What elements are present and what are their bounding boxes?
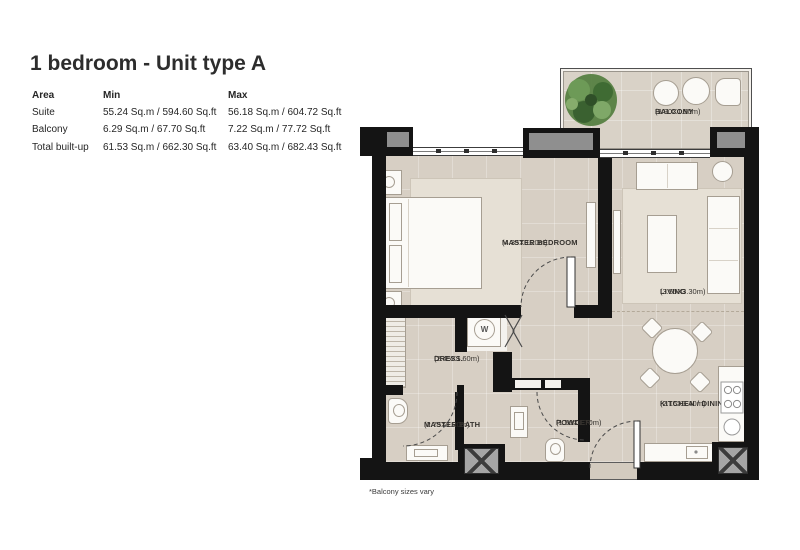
pillar-inset xyxy=(717,132,745,148)
sofa-cushion-line xyxy=(709,228,738,229)
living-dims: (3.55X3.30m) xyxy=(660,287,705,297)
wall-closet-left xyxy=(455,305,467,352)
dining-table xyxy=(652,328,698,374)
sofa-cushion-line xyxy=(709,260,738,261)
window-pane xyxy=(600,153,710,154)
spec-total-label: Total built-up xyxy=(32,142,103,159)
shaft-hatch-bath xyxy=(464,448,499,474)
pillar-inset xyxy=(529,133,593,150)
wall-right xyxy=(744,156,759,480)
shaft-hatch-kitchen xyxy=(718,447,748,474)
spec-total-min: 61.53 Sq.m / 662.30 Sq.ft xyxy=(103,142,228,159)
wall-bedroom-living xyxy=(598,156,612,318)
entry-threshold xyxy=(590,462,637,480)
floor-plan: W BALCONY (3.90X1.50m) MASTER BEDROOM (4… xyxy=(360,60,764,500)
wall-bath-top-left xyxy=(380,385,403,395)
sofa-cushion-line xyxy=(667,164,668,188)
wall-bedroom-door-stub xyxy=(574,305,598,318)
pillar-inset xyxy=(387,132,409,147)
side-table xyxy=(712,161,733,182)
kitchen-sink xyxy=(686,446,708,459)
footnote: *Balcony sizes vary xyxy=(369,487,434,496)
balcony-dims: (3.90X1.50m) xyxy=(655,107,700,117)
master-bedroom-dims: (4.35X3.20m) xyxy=(502,238,547,248)
wall-bedroom-bottom xyxy=(384,305,521,318)
powder-basin xyxy=(514,412,524,430)
coffee-table xyxy=(647,215,677,273)
pillow xyxy=(389,245,402,283)
bath-toilet-bowl xyxy=(393,404,405,417)
window-pane xyxy=(413,151,523,152)
powder-shelf xyxy=(515,380,541,388)
tv-console xyxy=(613,210,621,274)
spec-header-area: Area xyxy=(32,90,103,107)
powder-dims: (1.50X1.70m) xyxy=(556,418,601,428)
balcony-table xyxy=(682,77,710,105)
page-title: 1 bedroom - Unit type A xyxy=(30,52,266,76)
balcony-door-window xyxy=(600,149,710,158)
powder-shelf xyxy=(545,380,561,388)
spec-header-min: Min xyxy=(103,90,228,107)
master-bath-dims: (2.75X1.20m) xyxy=(424,420,469,430)
balcony-chair xyxy=(715,78,741,106)
kitchen-dining-dims: (2.15X3.40m) xyxy=(660,399,705,409)
bedroom-dresser xyxy=(586,202,596,268)
floor-transition-line xyxy=(612,311,744,312)
spec-suite-label: Suite xyxy=(32,107,103,124)
spec-balcony-label: Balcony xyxy=(32,124,103,141)
wall-powder-right xyxy=(578,390,590,442)
wall-bottom xyxy=(372,462,759,480)
balcony-chair xyxy=(653,80,679,106)
page: 1 bedroom - Unit type A Area Min Max Sui… xyxy=(0,0,800,550)
bath-basin xyxy=(414,449,438,457)
washing-machine-drum: W xyxy=(474,319,495,340)
bed-fold-line xyxy=(408,199,409,287)
wall-corner-bottom-left xyxy=(360,458,374,480)
pillow xyxy=(389,203,402,241)
wall-left xyxy=(372,156,386,480)
dress-dims: (2.45X1.60m) xyxy=(434,354,479,364)
powder-toilet-bowl xyxy=(550,443,561,455)
spec-suite-min: 55.24 Sq.m / 594.60 Sq.ft xyxy=(103,107,228,124)
spec-balcony-min: 6.29 Sq.m / 67.70 Sq.ft xyxy=(103,124,228,141)
bedroom-window xyxy=(413,147,523,156)
sofa-three-seat xyxy=(707,196,740,294)
washer-letter: W xyxy=(481,325,489,334)
wardrobe xyxy=(384,316,406,388)
